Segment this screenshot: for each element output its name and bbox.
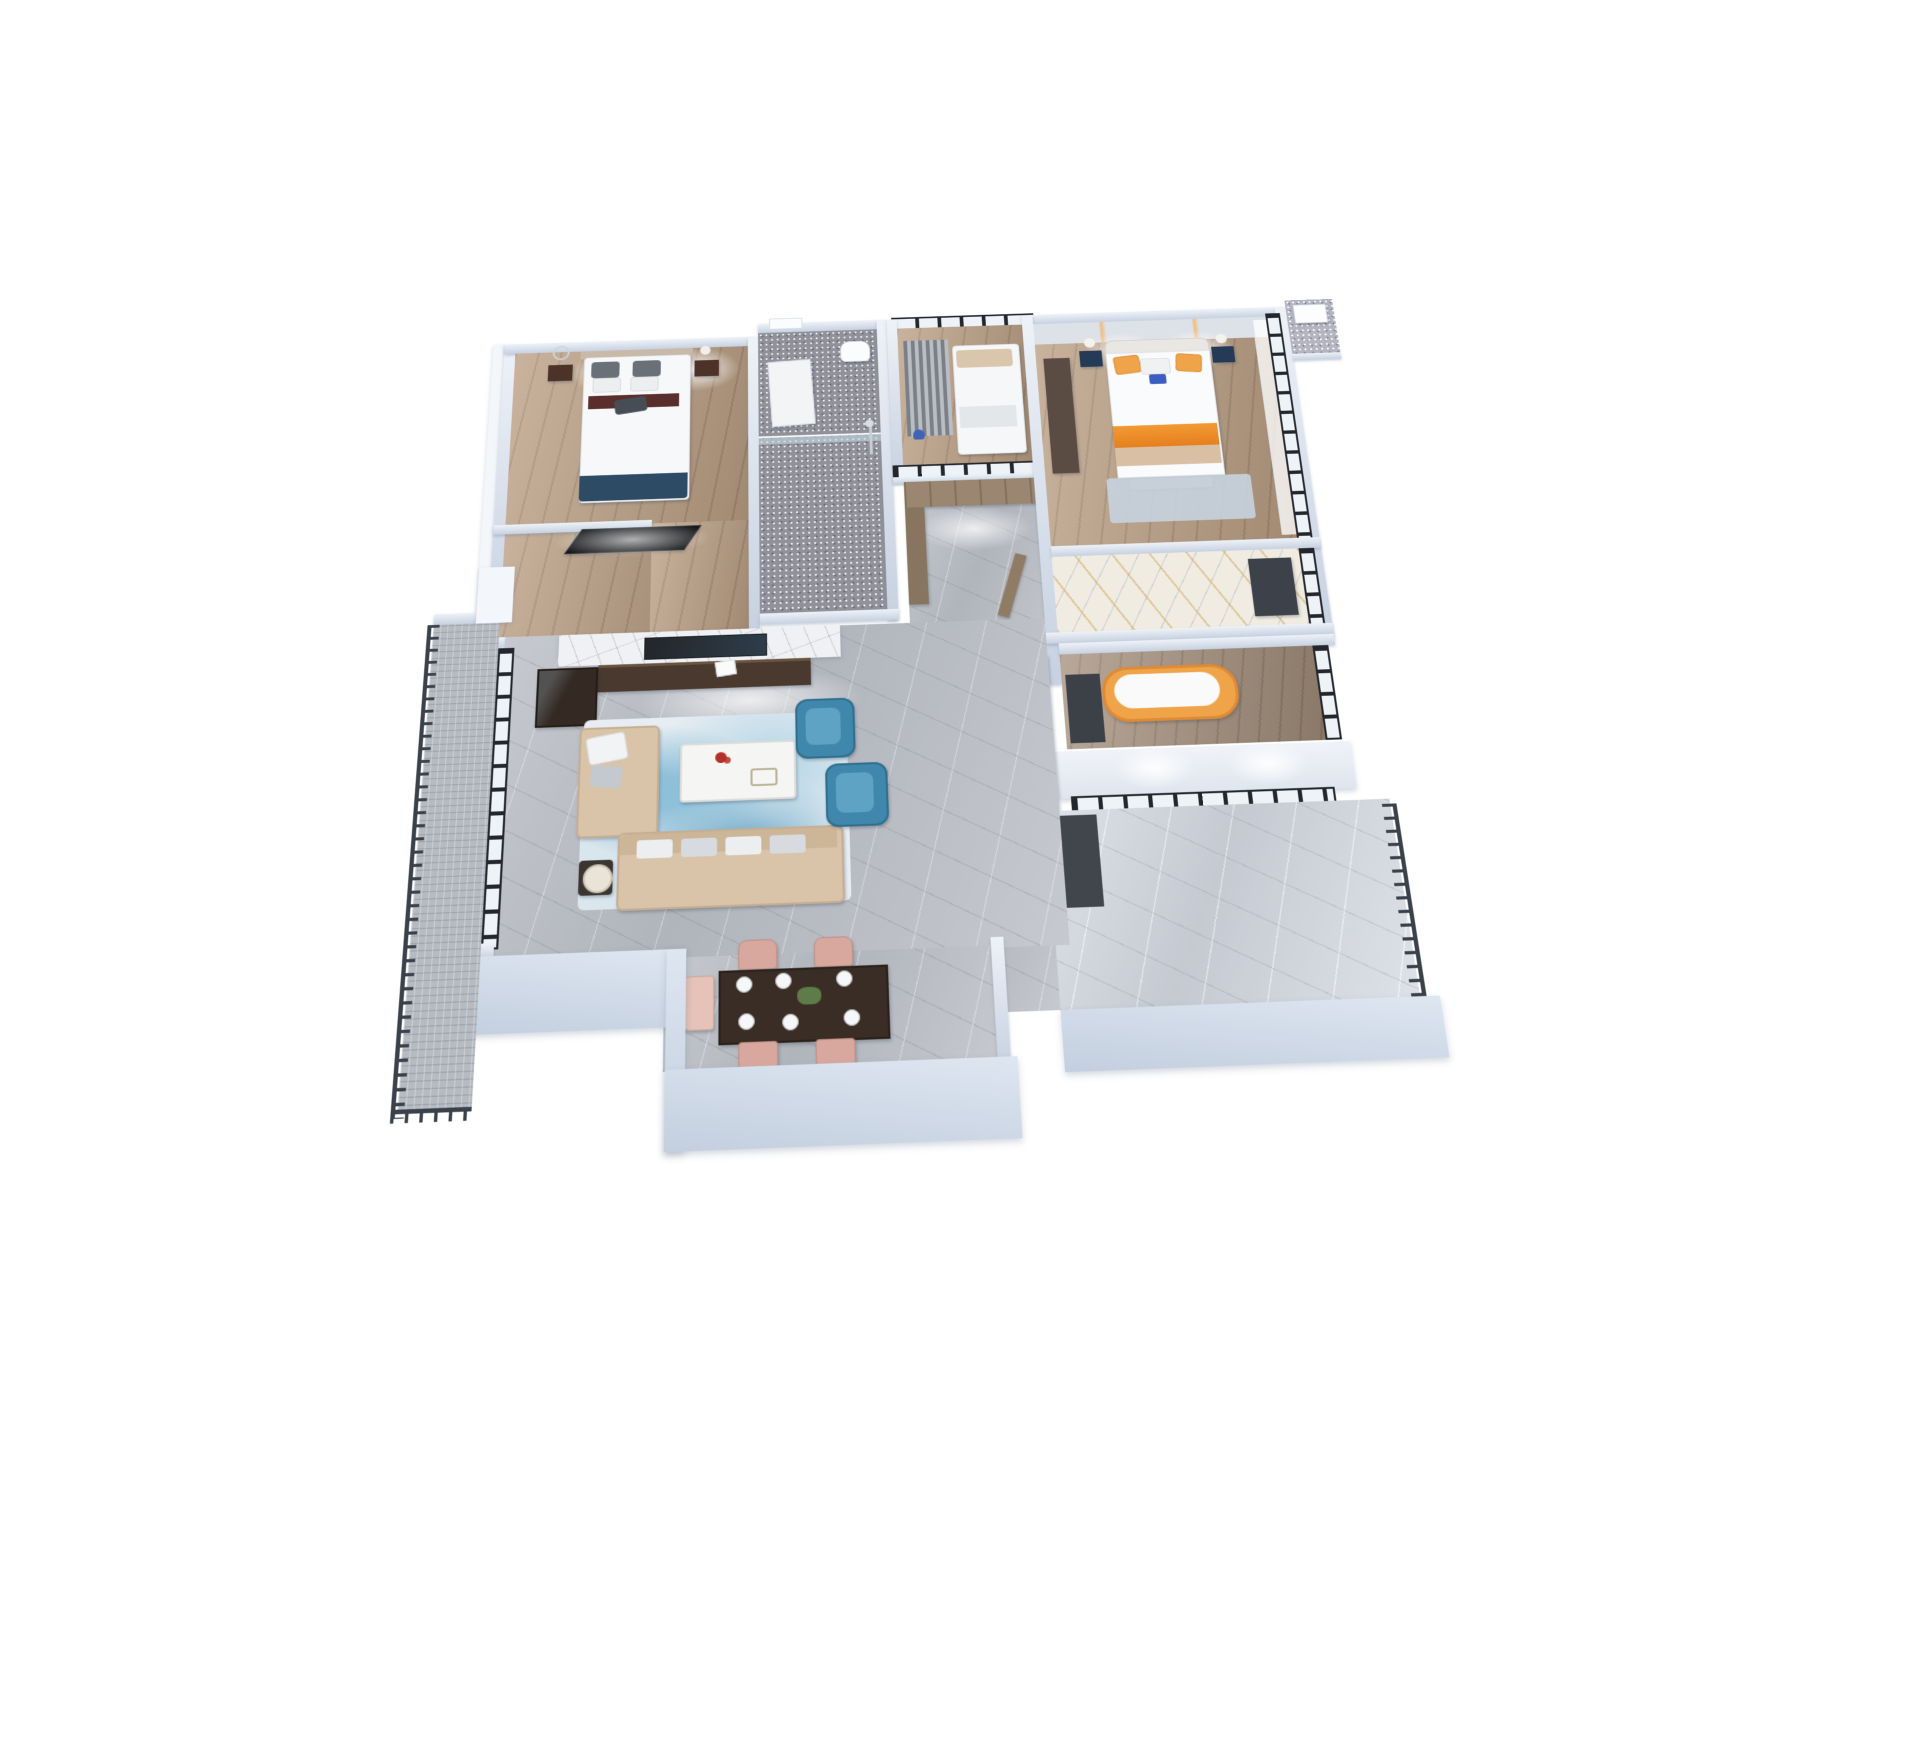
daybed-blanket (959, 405, 1017, 428)
bed-pillow-white (630, 376, 659, 391)
wall-mounted-tv (564, 525, 701, 554)
green-centerpiece (797, 986, 821, 1004)
foyer-wardrobe (904, 478, 1036, 508)
blue-figurine (913, 429, 925, 439)
master-nightstand-left (1079, 350, 1103, 367)
sofa-cushion (770, 834, 806, 854)
floorplan-render (0, 0, 1920, 1754)
recessed-tv (644, 633, 767, 659)
master-blue-rug (1106, 474, 1256, 523)
patterned-curtain (903, 340, 953, 437)
toilet (840, 341, 870, 363)
apartment-cutaway (377, 299, 1470, 1173)
bed-pillow-white (592, 377, 621, 392)
left-gable-wall (476, 567, 515, 624)
bathroom-door (769, 318, 802, 330)
daybed-pillow (956, 349, 1013, 368)
nightstand-left (548, 365, 573, 382)
master-nightstand-right (1211, 346, 1235, 363)
coffee-table (680, 740, 797, 803)
utility-platform-wall (1292, 352, 1341, 360)
bed-pillow-gray (591, 361, 620, 378)
tan-blanket (1115, 444, 1222, 466)
nightstand-right (694, 360, 718, 377)
light-blush-armchair (681, 975, 714, 1031)
right-parapet-wall (1061, 995, 1450, 1072)
blush-chair (738, 939, 777, 970)
sofa-cushion (681, 837, 717, 857)
sofa-cushion (725, 836, 761, 856)
white-pillow (1140, 358, 1172, 375)
orange-pillow (1176, 353, 1202, 372)
display-cabinet (535, 667, 599, 728)
orange-pillow (1112, 354, 1142, 375)
ac-unit (1292, 304, 1328, 324)
bed-foot-blanket (579, 472, 688, 501)
blue-accent-pillow (1149, 374, 1167, 384)
coffee-table-tray (750, 768, 777, 787)
dining-south-wall-face (664, 1056, 1023, 1152)
sofa-cushion (636, 839, 672, 859)
left-balcony-railing-bottom (390, 1107, 472, 1124)
blush-chair (814, 936, 854, 967)
teal-armchair-2-seat (836, 772, 875, 813)
chaise-pillow-gray (589, 765, 623, 789)
living-south-wall-face (449, 949, 684, 1036)
ensuite-vanity (1248, 557, 1299, 616)
teal-armchair-1-seat (805, 707, 841, 745)
bed-pillow-gray (632, 360, 661, 377)
bathtub-interior (1113, 671, 1222, 709)
bath-mat (768, 359, 816, 427)
dark-entry-mat (1065, 674, 1105, 744)
